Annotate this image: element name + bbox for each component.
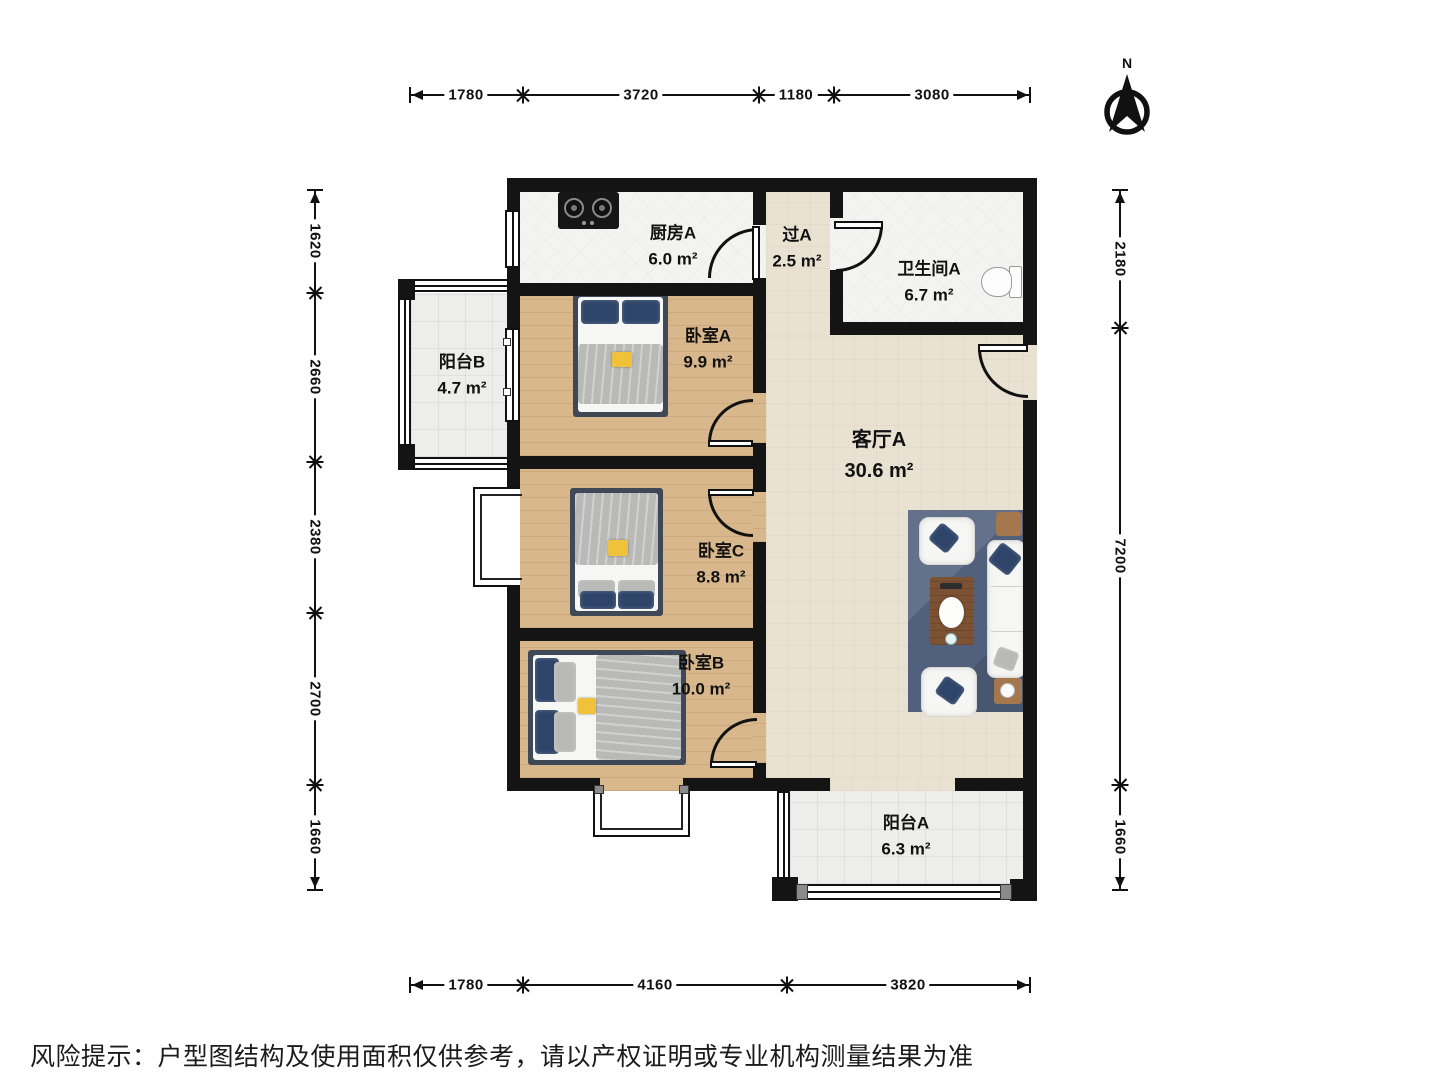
balcony-a-window-left	[777, 791, 790, 879]
wall-bottom-seg	[955, 778, 1037, 791]
balcony-b-window-bottom	[413, 457, 509, 470]
bedroom-a-door-leaf	[708, 440, 753, 447]
dimension-value: 1660	[308, 815, 323, 858]
room-name: 卧室A	[683, 324, 732, 350]
wall-bedroom-c-b	[507, 628, 766, 641]
window-end-cap	[796, 884, 808, 900]
north-label: N	[1096, 55, 1158, 71]
armchair	[919, 517, 975, 565]
kitchen-window	[505, 210, 520, 268]
bedroom-b-bay-window	[593, 791, 690, 837]
wall-balcony-a-corner	[1010, 879, 1037, 901]
room-area: 9.9 m²	[683, 350, 732, 376]
doorway-bedroom-c	[753, 492, 766, 542]
wall-bathroom-bottom	[830, 322, 1037, 335]
wall-corridor-seg	[753, 542, 766, 713]
dimension-tick	[758, 87, 760, 104]
coffee-table	[930, 577, 974, 645]
wall-top	[507, 178, 1037, 192]
dimension-value: 2660	[308, 355, 323, 398]
wall-corridor-seg	[753, 443, 766, 492]
room-name: 阳台A	[881, 811, 930, 837]
opening-balcony-a	[830, 778, 955, 791]
dimension-value: 1780	[444, 978, 487, 993]
window-end-cap	[1000, 884, 1012, 900]
dimension-tick	[1112, 784, 1129, 786]
dimension-value: 3720	[619, 88, 662, 103]
dimension-value: 7200	[1113, 534, 1128, 577]
bedroom-c-bay-window	[473, 487, 520, 587]
dimension-value: 2700	[308, 677, 323, 720]
bedroom-c-door-leaf	[708, 489, 754, 496]
wall-balcony-a-corner	[772, 877, 798, 901]
wall-left-seg	[507, 422, 520, 487]
north-compass-icon: N	[1096, 55, 1158, 147]
dimension-value: 1660	[1113, 815, 1128, 858]
stove	[558, 192, 619, 229]
dimension-value: 2380	[308, 515, 323, 558]
wall-corridor-seg	[753, 192, 766, 225]
dimension-value: 3080	[910, 88, 953, 103]
balcony-a-window-bottom	[796, 884, 1012, 900]
bed	[573, 292, 668, 417]
wall-right-lower	[1023, 400, 1037, 791]
wall-corridor-seg	[753, 278, 766, 393]
wall-bathroom-left-seg	[830, 192, 843, 218]
entry-door-leaf	[978, 344, 1028, 352]
dimension-value: 4160	[633, 978, 676, 993]
room-label-kitchen: 厨房A 6.0 m²	[648, 221, 697, 274]
side-table	[994, 678, 1022, 704]
room-area: 2.5 m²	[772, 249, 821, 275]
dimension-value: 2180	[1113, 237, 1128, 280]
floor-plan-page: 厨房A 6.0 m² 过A 2.5 m² 卫生间A 6.7 m² 阳台B 4.7…	[0, 0, 1440, 1080]
room-label-bedroom-c: 卧室C 8.8 m²	[696, 539, 745, 592]
dimension-tick	[786, 977, 788, 994]
doorway-bedroom-a	[753, 393, 766, 443]
room-area: 10.0 m²	[672, 677, 731, 703]
burner-icon	[592, 198, 612, 218]
dimension-value: 1620	[308, 219, 323, 262]
kitchen-door-leaf	[752, 226, 760, 280]
wall-kitchen-bedroom-a	[520, 283, 766, 296]
dimension-tick	[522, 977, 524, 994]
room-name: 卫生间A	[897, 257, 960, 283]
room-name: 阳台B	[437, 350, 486, 376]
sliding-door-handle	[503, 388, 511, 396]
wall-right-upper	[1023, 178, 1037, 345]
dimension-tick	[833, 87, 835, 104]
room-name: 客厅A	[845, 425, 914, 456]
sliding-door-handle	[503, 338, 511, 346]
room-area: 6.0 m²	[648, 247, 697, 273]
room-name: 厨房A	[648, 221, 697, 247]
risk-disclaimer: 风险提示：户型图结构及使用面积仅供参考，请以产权证明或专业机构测量结果为准	[30, 1037, 974, 1073]
wall-bottom-seg	[507, 778, 600, 791]
room-area: 30.6 m²	[845, 456, 914, 487]
toilet	[981, 264, 1023, 300]
dimension-value: 3820	[886, 978, 929, 993]
burner-icon	[564, 198, 584, 218]
dimension-value: 1780	[444, 88, 487, 103]
side-table	[996, 512, 1022, 536]
room-label-living: 客厅A 30.6 m²	[845, 425, 914, 487]
dimension-tick	[522, 87, 524, 104]
bed	[570, 488, 663, 616]
wall-left-seg	[507, 266, 520, 328]
room-label-balcony-a: 阳台A 6.3 m²	[881, 811, 930, 864]
room-name: 卧室C	[696, 539, 745, 565]
armchair	[921, 667, 977, 717]
bedroom-b-door-leaf	[710, 761, 757, 768]
room-area: 6.3 m²	[881, 837, 930, 863]
dimension-tick	[307, 292, 324, 294]
sofa	[987, 540, 1025, 678]
balcony-b-window-top	[413, 279, 509, 292]
room-label-bathroom: 卫生间A 6.7 m²	[897, 257, 960, 310]
room-area: 8.8 m²	[696, 565, 745, 591]
dimension-tick	[307, 612, 324, 614]
wall-bottom-seg	[683, 778, 830, 791]
balcony-b-window-left	[398, 298, 411, 446]
room-name: 卧室B	[672, 651, 731, 677]
room-label-balcony-b: 阳台B 4.7 m²	[437, 350, 486, 403]
bathroom-door-leaf	[834, 221, 883, 229]
bed	[528, 650, 686, 765]
dimension-value: 1180	[775, 88, 818, 103]
room-label-passage: 过A 2.5 m²	[772, 223, 821, 276]
dimension-tick	[307, 461, 324, 463]
dimension-tick	[307, 784, 324, 786]
room-name: 过A	[772, 223, 821, 249]
room-area: 4.7 m²	[437, 376, 486, 402]
wall-bedroom-a-c	[507, 456, 766, 469]
wall-left-seg	[507, 178, 520, 210]
room-area: 6.7 m²	[897, 283, 960, 309]
wall-bathroom-left-seg	[830, 270, 843, 322]
dimension-tick	[1112, 327, 1129, 329]
wall-left-seg	[507, 587, 520, 791]
room-label-bedroom-a: 卧室A 9.9 m²	[683, 324, 732, 377]
room-label-bedroom-b: 卧室B 10.0 m²	[672, 651, 731, 704]
